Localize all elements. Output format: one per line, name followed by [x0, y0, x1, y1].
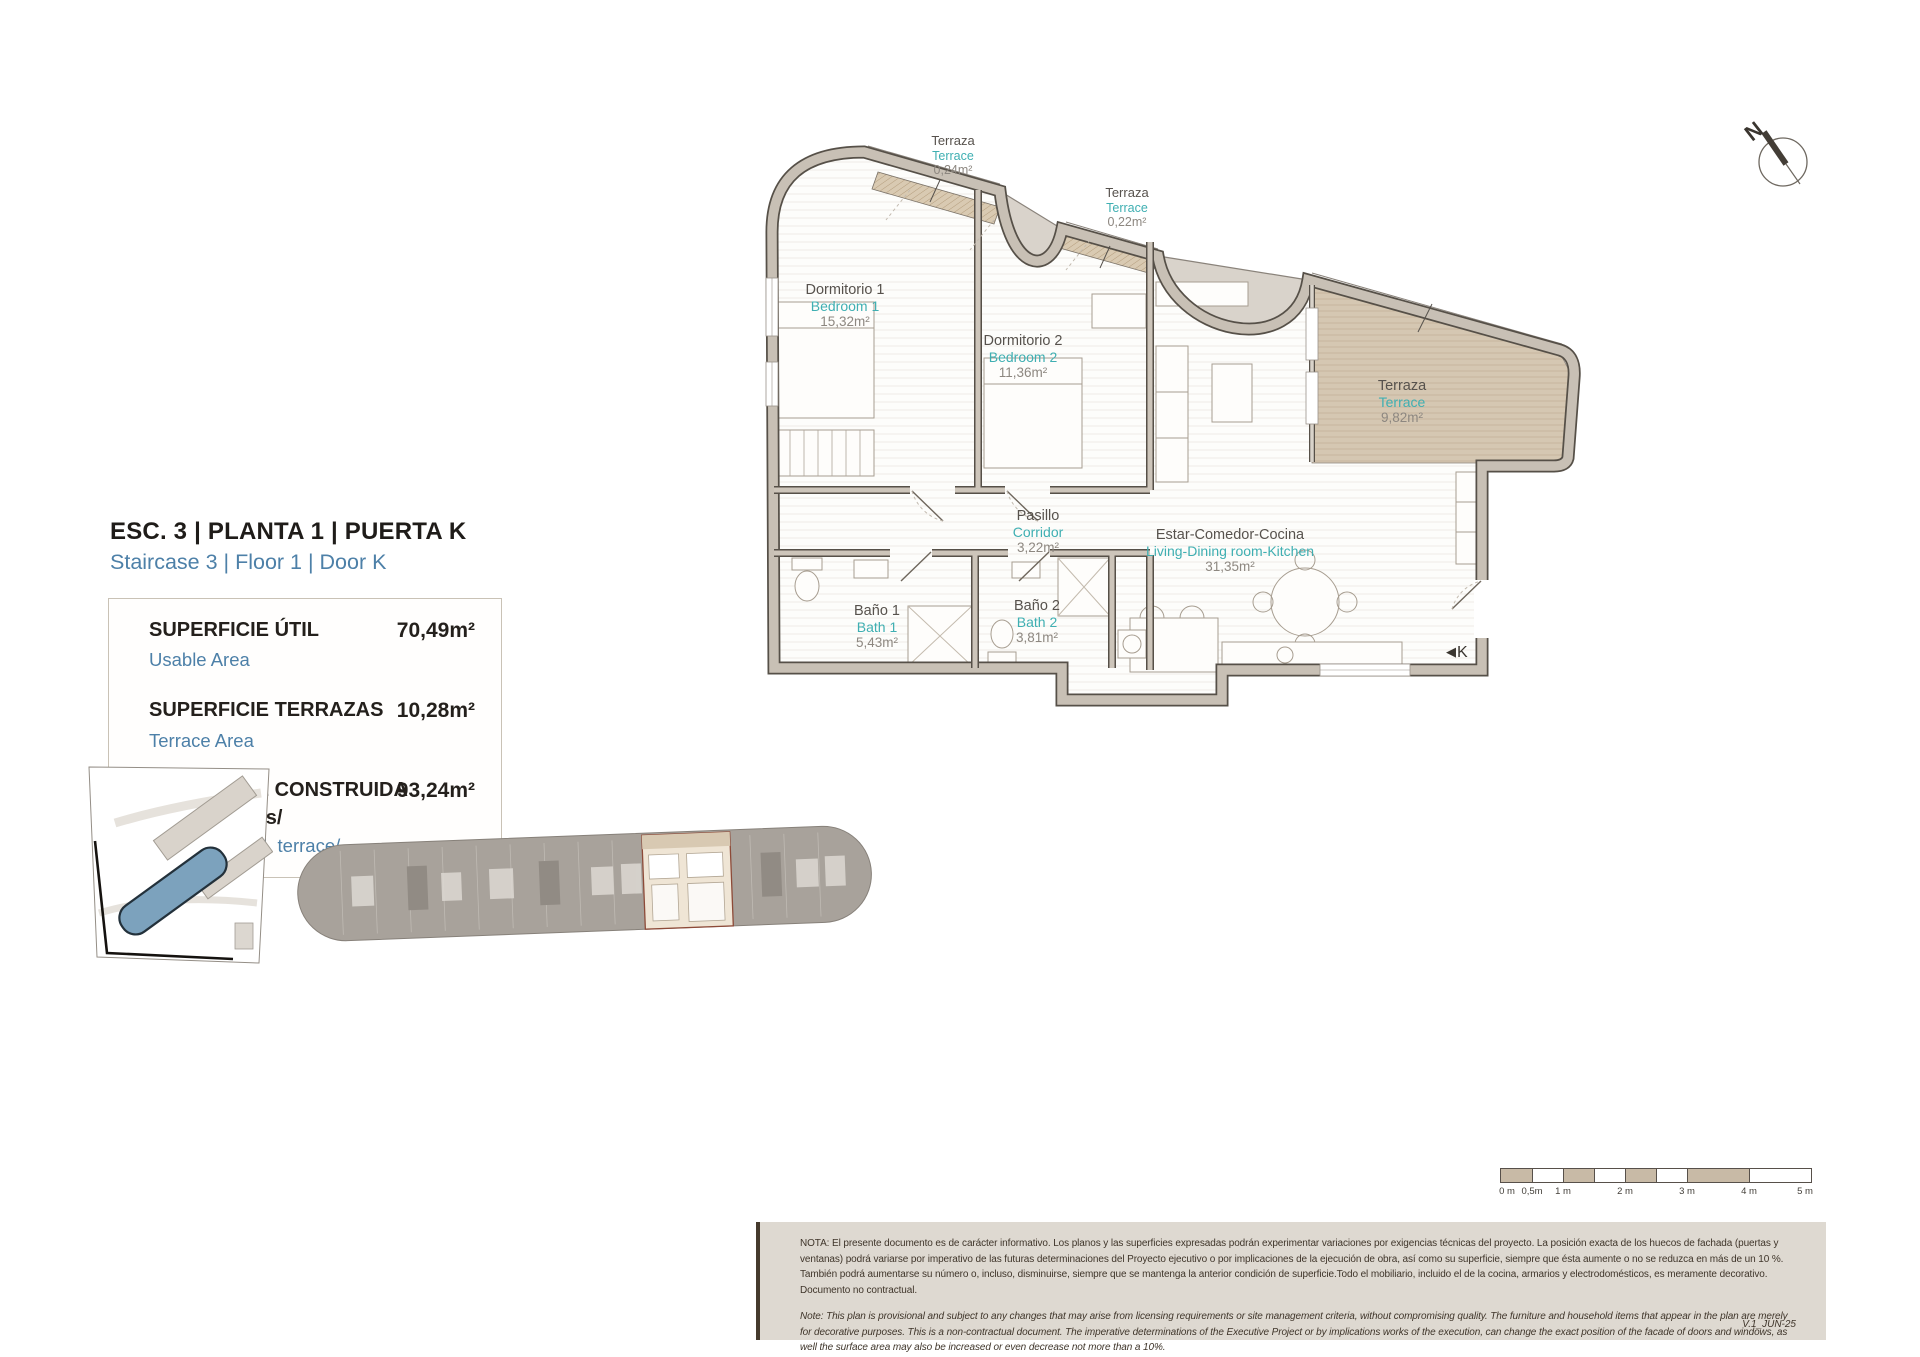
- washer: [1118, 630, 1146, 658]
- building-floor-strip-plan: [292, 820, 884, 968]
- dining-table: [1271, 568, 1339, 636]
- stair-core: [761, 852, 783, 897]
- page-title-en: Staircase 3 | Floor 1 | Door K: [110, 550, 386, 575]
- wardrobe-1: [776, 430, 874, 476]
- room-label-bedroom-2: Dormitorio 2 Bedroom 2 11,36m²: [984, 333, 1063, 381]
- toilet-1: [795, 571, 819, 601]
- door-direction-icon: ◀: [1446, 644, 1457, 659]
- scale-label-0: 0 m: [1499, 1186, 1515, 1197]
- desk: [1092, 294, 1146, 328]
- usable-area-value: 70,49m²: [397, 619, 475, 643]
- entrance-door-marker: ◀K: [1446, 644, 1469, 662]
- toilet-2: [991, 620, 1013, 648]
- room-label-terrace-1: Terraza Terrace 0,24m²: [931, 134, 974, 177]
- coffee-table: [1212, 364, 1252, 422]
- room-label-bath-1: Baño 1 Bath 1 5,43m²: [854, 603, 900, 651]
- stair-core: [407, 866, 429, 911]
- scale-label-3: 3 m: [1679, 1186, 1695, 1197]
- scale-label-5: 5 m: [1797, 1186, 1813, 1197]
- scale-bar: 0 m 0,5m 1 m 2 m 3 m 4 m 5 m: [1500, 1168, 1812, 1183]
- compass-n-label: N: [1740, 116, 1768, 145]
- terrace-area-label-en: Terrace Area: [149, 730, 254, 752]
- room-label-bath-2: Baño 2 Bath 2 3,81m²: [1014, 598, 1060, 646]
- room-label-bedroom-1: Dormitorio 1 Bedroom 1 15,32m²: [806, 282, 885, 330]
- disclaimer-note-box: NOTA: El presente documento es de caráct…: [756, 1222, 1826, 1340]
- north-compass-icon: N: [1738, 96, 1838, 206]
- usable-area-label-en: Usable Area: [149, 649, 250, 671]
- apartment-floor-plan: [760, 110, 1610, 810]
- room-label-corridor: Pasillo Corridor 3,22m²: [1013, 508, 1064, 556]
- scale-label-2: 2 m: [1617, 1186, 1633, 1197]
- scale-label-1: 1 m: [1555, 1186, 1571, 1197]
- stair-core: [539, 861, 561, 906]
- entrance-opening: [1474, 580, 1491, 638]
- site-location-map: [85, 763, 273, 967]
- room-label-terrace-main: Terraza Terrace 9,82m²: [1378, 378, 1426, 426]
- sofa: [1156, 346, 1188, 482]
- note-text-es: NOTA: El presente documento es de caráct…: [800, 1222, 1798, 1298]
- door-letter: K: [1457, 644, 1469, 661]
- room-label-terrace-2: Terraza Terrace 0,22m²: [1105, 186, 1148, 229]
- toilet-1-tank: [792, 558, 822, 570]
- sink-1: [854, 560, 888, 578]
- neighbor-building: [235, 923, 253, 949]
- room-label-living: Estar-Comedor-Cocina Living-Dining room-…: [1146, 527, 1314, 575]
- terrace-area-value: 10,28m²: [397, 699, 475, 723]
- plan-version: V.1_JUN-25: [1742, 1319, 1796, 1330]
- usable-area-label-es: SUPERFICIE ÚTIL: [149, 619, 319, 642]
- scale-label-05: 0,5m: [1521, 1186, 1542, 1197]
- built-area-value: 93,24m²: [397, 779, 475, 803]
- highlighted-unit: [642, 832, 734, 929]
- terrace-area-label-es: SUPERFICIE TERRAZAS: [149, 699, 383, 722]
- note-text-en: Note: This plan is provisional and subje…: [800, 1309, 1798, 1356]
- floor-plan-sheet: ESC. 3 | PLANTA 1 | PUERTA K Staircase 3…: [0, 0, 1920, 1357]
- scale-label-4: 4 m: [1741, 1186, 1757, 1197]
- page-title-es: ESC. 3 | PLANTA 1 | PUERTA K: [110, 518, 466, 546]
